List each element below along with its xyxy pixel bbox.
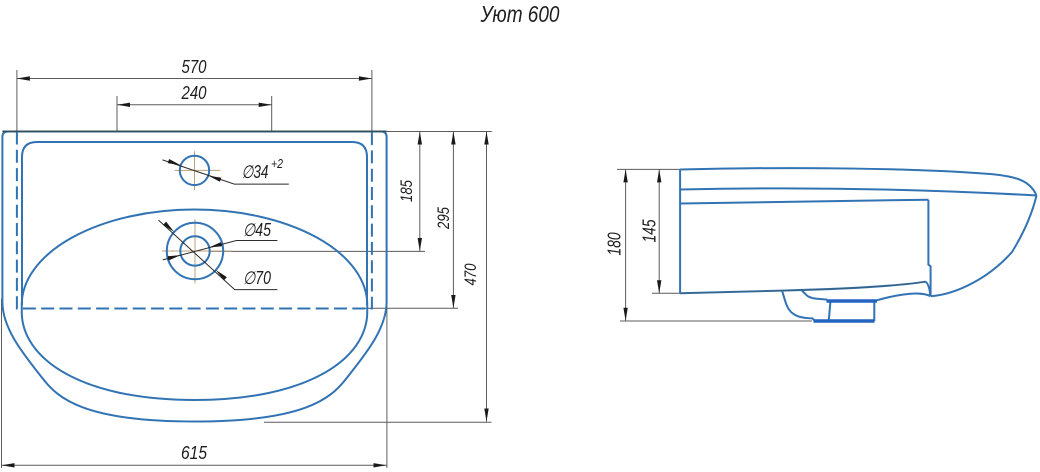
svg-text:240: 240 (181, 83, 207, 103)
svg-text:+2: +2 (271, 157, 283, 171)
svg-text:145: 145 (640, 219, 660, 243)
svg-text:470: 470 (461, 263, 480, 285)
svg-text:185: 185 (397, 180, 416, 202)
svg-text:295: 295 (434, 207, 453, 230)
svg-text:∅34: ∅34 (242, 162, 269, 182)
svg-text:615: 615 (181, 443, 208, 463)
svg-text:Уют 600: Уют 600 (480, 1, 560, 27)
svg-text:∅45: ∅45 (243, 220, 272, 240)
svg-text:∅70: ∅70 (243, 268, 271, 288)
svg-text:570: 570 (182, 57, 207, 77)
svg-text:180: 180 (605, 232, 625, 255)
